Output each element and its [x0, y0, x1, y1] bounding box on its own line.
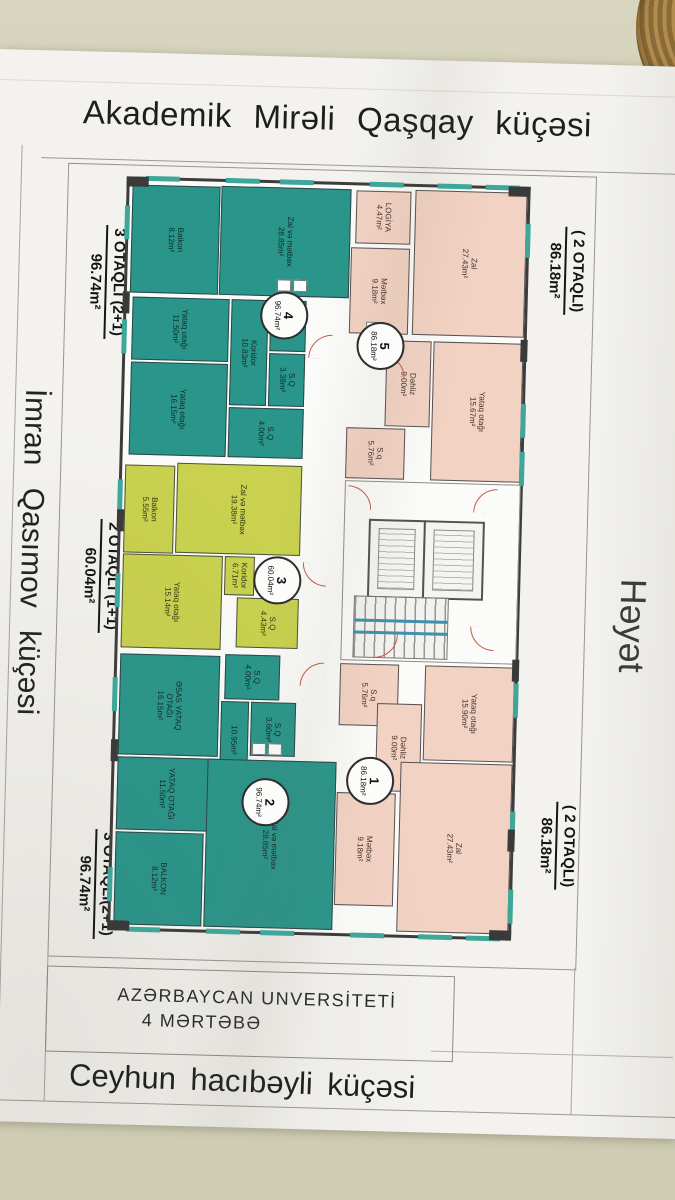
room-sq: S.Q3.38m²	[268, 353, 305, 407]
kitchen-fixture	[268, 743, 282, 755]
apartment-type-label-1: ( 2 OTAQLI) 86.18m²	[535, 801, 579, 890]
column-mark	[122, 291, 130, 313]
apartment-type-label-5: ( 2 OTAQLI) 86.18m²	[544, 226, 588, 315]
room-balkon: Balkon5.55m²	[123, 464, 175, 553]
column-mark	[127, 176, 149, 187]
window-mark	[519, 452, 525, 486]
apartment-badge-3: 360.04m²	[253, 556, 302, 605]
stair-rail	[354, 618, 447, 623]
window-mark	[146, 176, 180, 182]
window-mark	[418, 934, 452, 940]
photo-of-floor-plan: Akademik Mirəli Qaşqay küçəsi İmran Qası…	[0, 0, 675, 1200]
room-zal-metbex: Zal və mətbəx19.38m²	[175, 463, 302, 556]
room-sq: S.q5.76m²	[345, 427, 405, 480]
window-mark	[507, 890, 513, 924]
room-logiya: LOGİYA4.47m²	[355, 190, 411, 244]
window-mark	[525, 224, 531, 258]
room-sq: S.Q4.43m²	[236, 597, 299, 649]
room-koridor: Koridor6.71m²	[224, 556, 255, 596]
column-mark	[520, 340, 528, 362]
street-name-bottom: Ceyhun hacıbəyli küçəsi	[12, 1055, 473, 1108]
window-mark	[438, 183, 472, 189]
footer-right-line	[431, 1051, 673, 1058]
column-mark	[507, 830, 515, 852]
door-arc	[302, 562, 327, 587]
room-yataq: YATAQ OTAĞI11.50m²	[116, 756, 218, 832]
elevator-cab	[432, 529, 475, 591]
column-mark	[508, 186, 530, 197]
window-mark	[121, 319, 127, 353]
window-mark	[112, 677, 118, 711]
column-mark	[117, 509, 125, 531]
university-name: AZƏRBAYCAN UNVERSİTETİ	[117, 984, 453, 1014]
window-mark	[226, 178, 260, 184]
room-yataq: Yataq otağı15.14m²	[121, 553, 223, 650]
floor-plan-sheet: Akademik Mirəli Qaşqay küçəsi İmran Qası…	[0, 49, 675, 1139]
door-arc	[300, 662, 325, 687]
floor-number: 4 MƏRTƏBƏ	[141, 1010, 452, 1039]
room-yataq: Yataq otağı16.15m²	[129, 362, 228, 458]
kitchen-fixture	[252, 743, 266, 755]
window-mark	[124, 205, 130, 239]
building-footprint: Balkon8.12m² Zal və mətbəx28.85m² Yataq …	[110, 179, 527, 937]
room-zal: Zal27.43m²	[396, 762, 512, 935]
room-esas-yataq: ƏSAS YATAQ OTAĞI16.15m²	[118, 653, 221, 757]
column-mark	[512, 660, 520, 682]
room-yataq: Yataq otağı11.50m²	[131, 297, 230, 363]
kitchen-fixture	[277, 279, 291, 291]
window-mark	[370, 182, 404, 188]
window-mark	[520, 404, 526, 438]
room-sq: S.Q4.00m²	[224, 654, 280, 700]
frame-right-extension	[570, 968, 575, 1114]
door-arc	[308, 334, 333, 359]
room-balkon: Balkon8.12m²	[130, 184, 221, 294]
window-mark	[350, 932, 384, 938]
room-balkon: BALKON8.12m²	[113, 831, 203, 926]
window-mark	[513, 684, 519, 718]
column-mark	[111, 739, 119, 761]
room-zal: Zal27.43m²	[412, 190, 528, 338]
elevator-shaft	[367, 519, 426, 599]
window-mark	[260, 930, 294, 936]
window-mark	[206, 929, 240, 935]
elevator-shaft	[422, 520, 485, 601]
staircase	[352, 595, 449, 659]
yard-label-right: Həyət	[610, 578, 654, 673]
street-name-top: Akademik Mirəli Qaşqay küçəsi	[37, 92, 638, 146]
window-mark	[117, 479, 123, 513]
elevator-cab	[377, 528, 416, 590]
kitchen-fixture	[293, 280, 307, 292]
column-mark	[107, 920, 129, 931]
window-mark	[107, 867, 113, 901]
street-name-left: İmran Qasımov küçəsi	[10, 388, 53, 715]
column-mark	[489, 930, 511, 941]
building-note-box: AZƏRBAYCAN UNVERSİTETİ 4 MƏRTƏBƏ	[45, 966, 455, 1063]
window-mark	[126, 927, 160, 933]
window-mark	[115, 573, 121, 607]
room-yataq: Yataq otağı15.67m²	[430, 341, 524, 482]
room-sq: S.Q4.00m²	[228, 407, 304, 459]
room-metbex: Mətbəx9.18m²	[334, 792, 396, 907]
window-mark	[280, 179, 314, 185]
room-yataq: Yataq otağı15.90m²	[423, 665, 515, 762]
stair-rail	[354, 630, 447, 635]
